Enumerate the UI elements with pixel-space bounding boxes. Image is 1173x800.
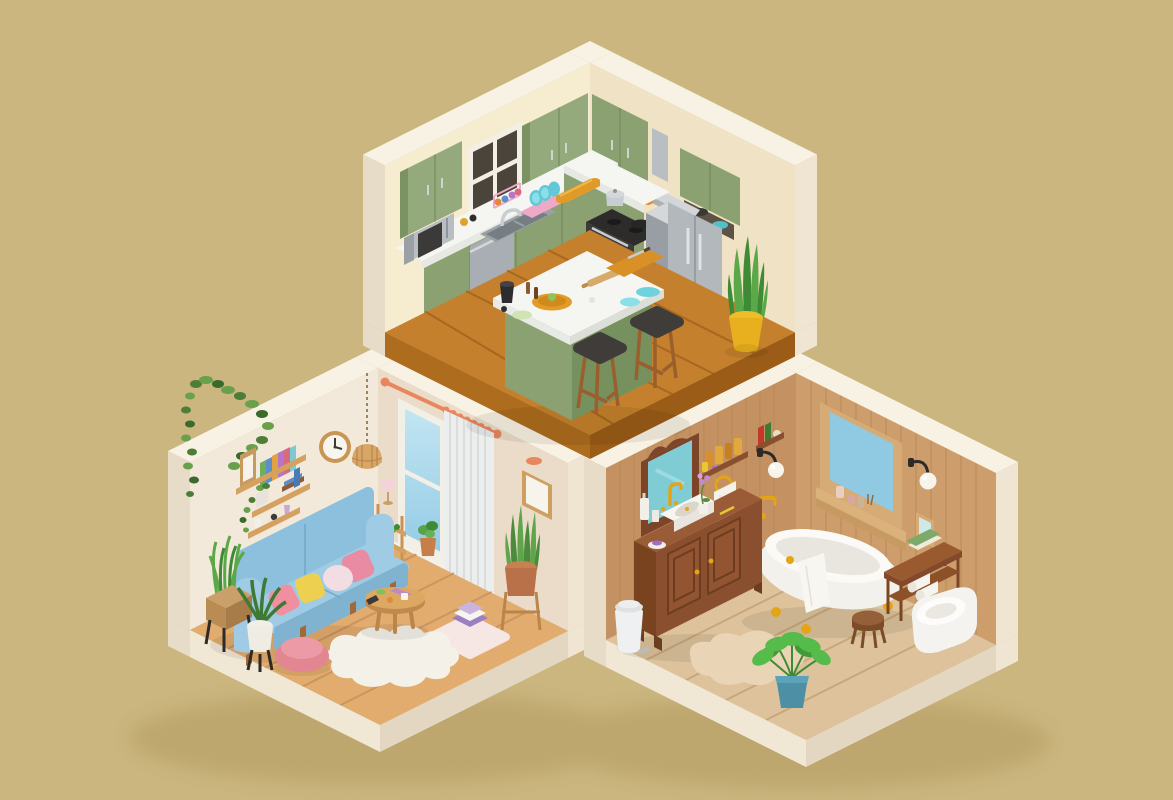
soap-pump bbox=[640, 498, 649, 520]
scene-canvas bbox=[0, 0, 1173, 800]
stool-seat bbox=[635, 311, 679, 333]
bathroom-left-end-cap bbox=[584, 457, 606, 640]
green-apple bbox=[548, 293, 556, 301]
bathroom-right-end-cap bbox=[996, 462, 1018, 645]
kitchen-left-end-cap bbox=[363, 155, 385, 333]
isometric-room-scene bbox=[0, 0, 1173, 800]
tub-spout bbox=[786, 556, 794, 564]
white-mug bbox=[401, 593, 408, 600]
pepper-grinder bbox=[526, 282, 530, 294]
bird-ornament bbox=[254, 518, 262, 528]
orange-pot bbox=[387, 597, 393, 603]
green-plate bbox=[512, 311, 532, 320]
cup bbox=[652, 510, 659, 522]
salt-grinder bbox=[534, 287, 538, 299]
cream-tube bbox=[702, 462, 708, 472]
stool-seat bbox=[578, 337, 622, 359]
picture-light bbox=[526, 457, 542, 465]
kitchen-right-end-cap bbox=[795, 155, 817, 333]
blue-plate bbox=[620, 298, 640, 307]
blue-plate bbox=[636, 287, 660, 297]
green-cup bbox=[377, 590, 386, 595]
wall-clock bbox=[319, 431, 351, 463]
pot bbox=[606, 189, 624, 206]
living-room-left-end-cap bbox=[168, 451, 190, 630]
